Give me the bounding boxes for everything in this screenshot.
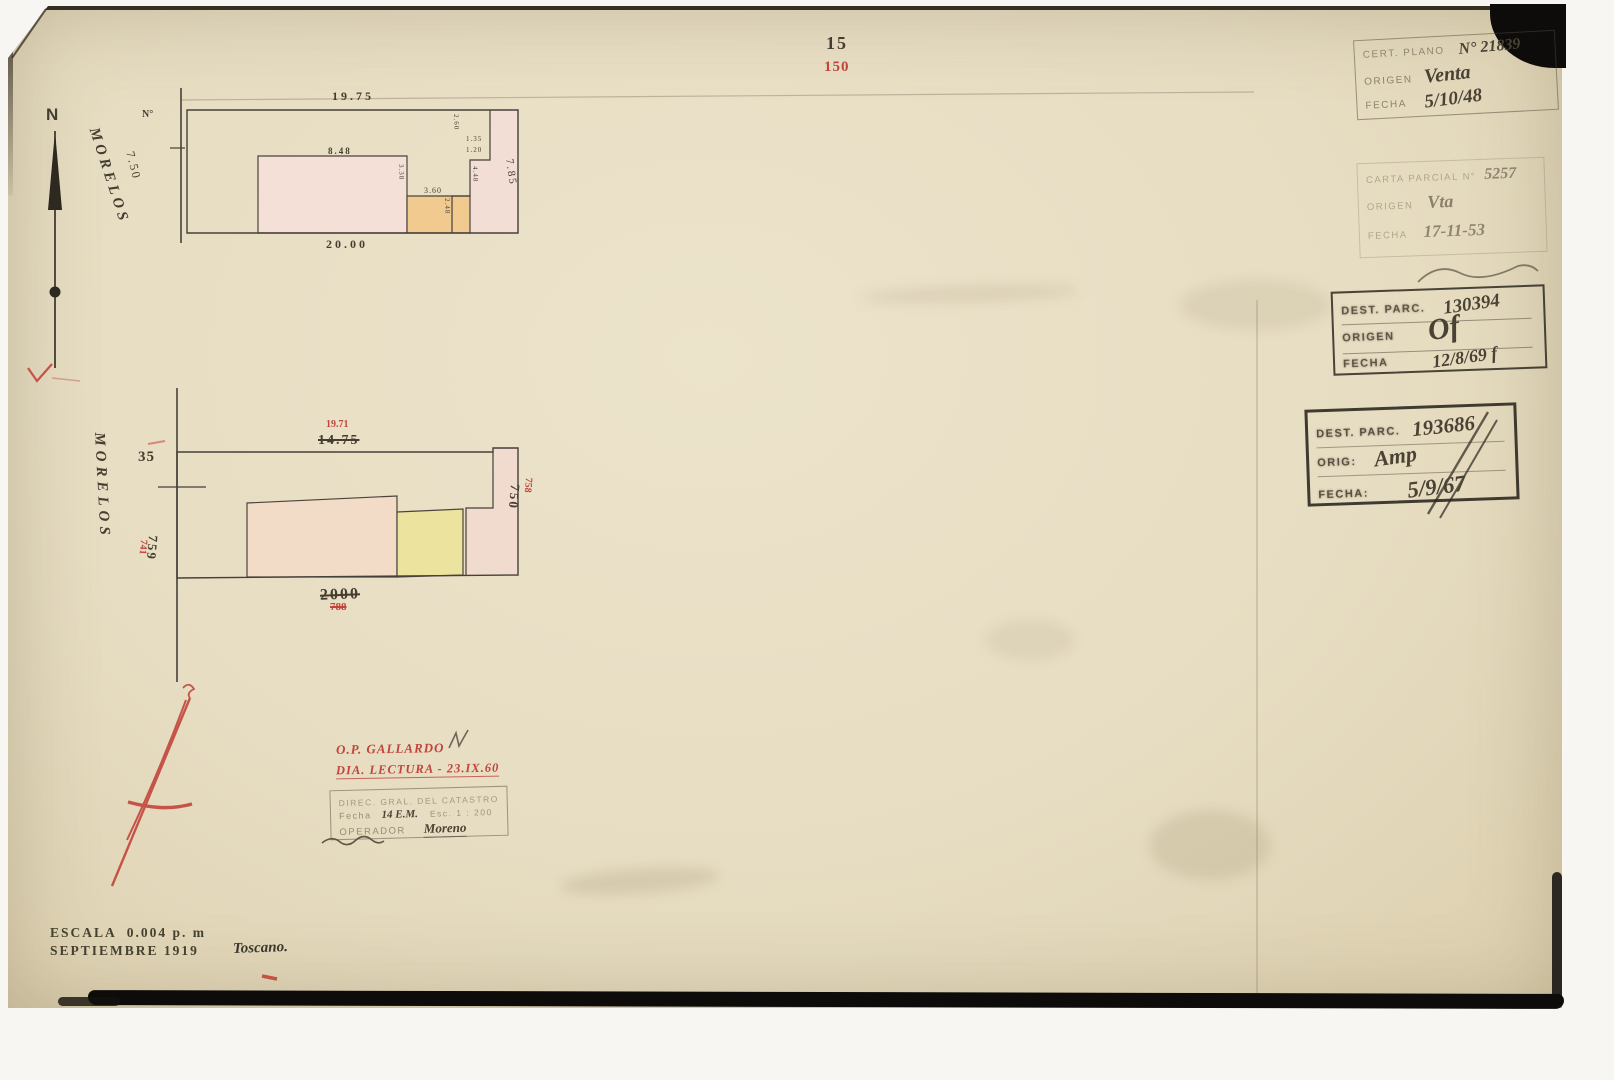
upper-dim-c: 1.20 bbox=[466, 147, 482, 154]
lower-left-dim-red: 741 bbox=[137, 539, 148, 555]
upper-building-dim: 8.48 bbox=[328, 147, 352, 156]
north-label: N bbox=[46, 106, 58, 123]
red-note-line2: DIA. LECTURA - 23.IX.60 bbox=[336, 762, 500, 779]
dest2-origen-value: Amp bbox=[1373, 441, 1419, 473]
lower-offset-dim: 35 bbox=[138, 450, 155, 465]
dest1-origen-label: ORIGEN bbox=[1342, 331, 1395, 345]
operador-value: Moreno bbox=[424, 820, 467, 838]
upper-dim-f: 3.60 bbox=[424, 187, 442, 195]
dest2-number: 193686 bbox=[1411, 411, 1476, 442]
scan-edge-bottom-left bbox=[58, 997, 120, 1006]
upper-dim-e: 3.38 bbox=[397, 164, 405, 180]
cert-number: N° 21839 bbox=[1458, 36, 1521, 59]
surveyor-signature: Toscano. bbox=[233, 940, 288, 957]
upper-dim-d: 4.48 bbox=[471, 166, 479, 182]
operator-stamp: DIREC. GRAL. DEL CATASTRO Fecha 14 E.M. … bbox=[329, 786, 508, 841]
upper-dim-b: 1.35 bbox=[466, 136, 482, 143]
stamp-dest-parc-1: DEST. PARC. 130394 ORIGEN Of FECHA 12/8/… bbox=[1331, 284, 1548, 375]
dest1-fecha-value: 12/8/69 f bbox=[1431, 343, 1499, 373]
stain bbox=[985, 620, 1075, 660]
lower-bottom-dim-red: 788 bbox=[330, 602, 347, 613]
escala-line: ESCALA 0.004 p. m bbox=[50, 926, 206, 940]
cert-fecha-label: FECHA bbox=[1365, 99, 1407, 112]
carta-fecha-label: FECHA bbox=[1368, 230, 1408, 242]
lower-right-dim-red: 758 bbox=[522, 477, 533, 493]
cert-label: CERT. PLANO bbox=[1363, 46, 1445, 61]
dest1-origen-value: Of bbox=[1426, 309, 1463, 348]
operador-label: OPERADOR bbox=[339, 825, 406, 838]
paper-sheet bbox=[8, 6, 1562, 1008]
dest1-label: DEST. PARC. bbox=[1341, 302, 1426, 317]
dest1-fecha-label: FECHA bbox=[1343, 357, 1389, 371]
lower-top-dim: 14.75 bbox=[318, 434, 360, 448]
carta-number: 5257 bbox=[1484, 165, 1517, 184]
upper-lot-label: N° bbox=[142, 110, 153, 120]
fecha-label: Fecha bbox=[339, 810, 372, 821]
lower-top-dim-red: 19.71 bbox=[326, 420, 349, 430]
fold-crease bbox=[1256, 300, 1258, 1000]
carta-fecha-value: 17-11-53 bbox=[1423, 220, 1485, 242]
carta-origen-label: ORIGEN bbox=[1367, 200, 1414, 213]
stamp-cert-plano: CERT. PLANO N° 21839 ORIGEN Venta FECHA … bbox=[1353, 30, 1559, 120]
stain bbox=[1180, 280, 1330, 330]
fecha-line: SEPTIEMBRE 1919 bbox=[50, 944, 199, 958]
dest2-fecha-label: FECHA: bbox=[1318, 488, 1369, 502]
carta-origen-value: Vta bbox=[1427, 191, 1454, 213]
dest2-origen-label: ORIG: bbox=[1317, 456, 1357, 469]
esc-label: Esc. 1 : 200 bbox=[430, 807, 493, 819]
dest2-label: DEST. PARC. bbox=[1316, 425, 1401, 440]
upper-bottom-dim: 20.00 bbox=[326, 238, 368, 250]
lower-right-dim: 750 bbox=[507, 484, 522, 511]
stamp-carta-parcial: CARTA PARCIAL N° 5257 ORIGEN Vta FECHA 1… bbox=[1356, 157, 1547, 259]
scan-edge-top bbox=[30, 6, 1492, 10]
cert-origen-value: Venta bbox=[1423, 61, 1472, 89]
stamp-dest-parc-2: DEST. PARC. 193686 ORIG: Amp FECHA: 5/9/… bbox=[1304, 402, 1519, 506]
stain bbox=[1150, 810, 1270, 880]
upper-dim-g: 2.48 bbox=[443, 198, 451, 214]
fecha-value: 14 E.M. bbox=[381, 808, 418, 821]
cert-origen-label: ORIGEN bbox=[1364, 74, 1413, 88]
sheet-number-red: 150 bbox=[824, 60, 850, 75]
red-note-line1: O.P. GALLARDO bbox=[336, 741, 445, 756]
dest2-fecha-value: 5/9/67 bbox=[1405, 471, 1467, 504]
upper-dim-a: 2.60 bbox=[452, 114, 460, 130]
upper-top-dim: 19.75 bbox=[332, 90, 374, 102]
scanned-cadastral-sheet: 15 150 N MORELOS N° 7.50 19.75 20.00 7.8… bbox=[0, 0, 1614, 1080]
scan-edge-right bbox=[1552, 872, 1562, 1002]
scan-edge-left bbox=[8, 26, 13, 196]
carta-label: CARTA PARCIAL N° bbox=[1366, 171, 1477, 186]
cert-fecha-value: 5/10/48 bbox=[1424, 85, 1484, 114]
sheet-number: 15 bbox=[826, 34, 848, 52]
